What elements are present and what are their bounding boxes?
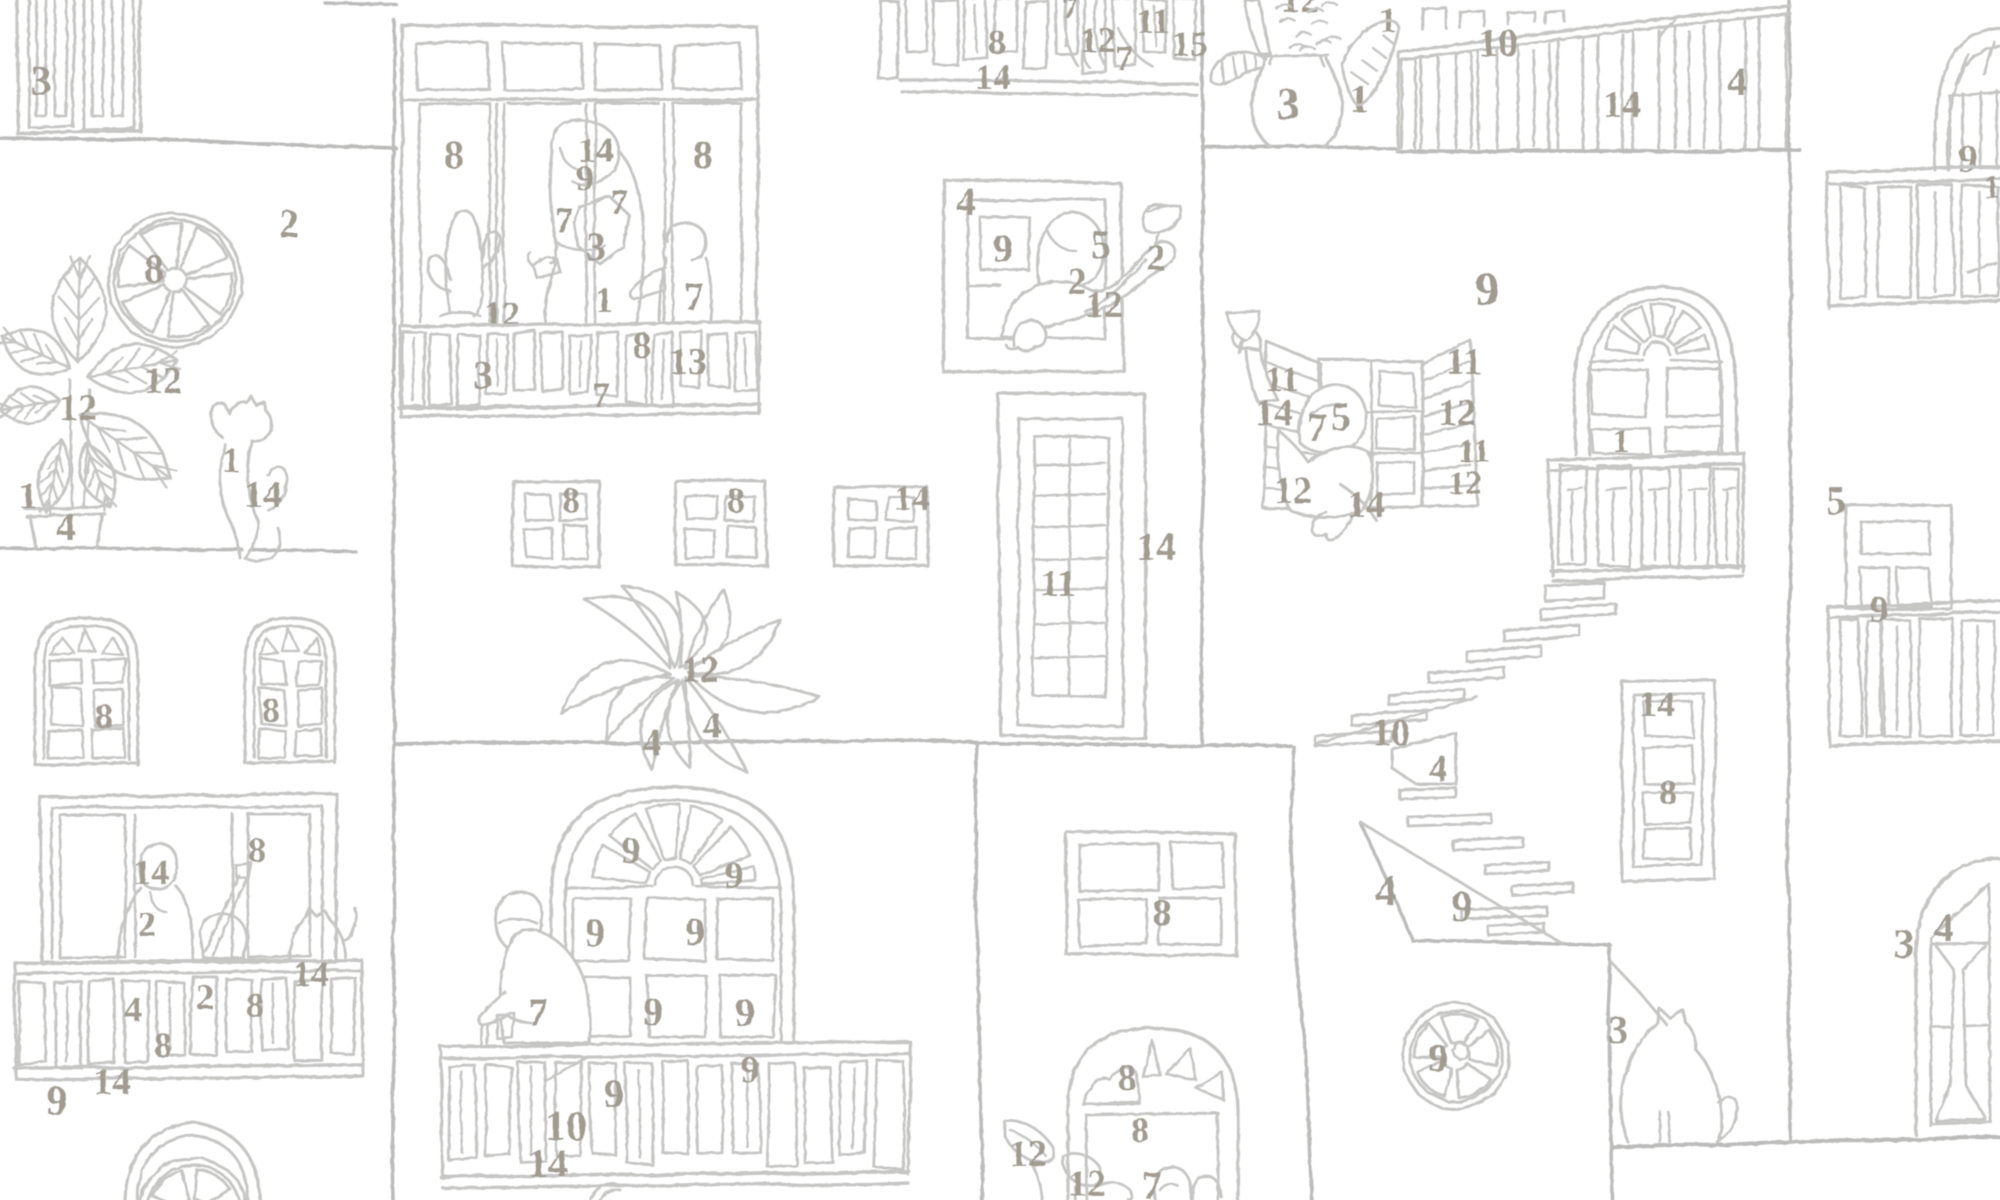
svg-text:2: 2 — [279, 201, 299, 246]
svg-text:14: 14 — [894, 478, 930, 518]
svg-text:9: 9 — [1451, 882, 1473, 931]
svg-text:5: 5 — [1331, 394, 1351, 439]
svg-text:4: 4 — [1375, 866, 1397, 915]
svg-text:12: 12 — [1068, 1163, 1106, 1200]
svg-text:3: 3 — [586, 224, 606, 269]
svg-text:14: 14 — [93, 1061, 131, 1103]
svg-text:14: 14 — [244, 474, 282, 516]
svg-text:9: 9 — [735, 990, 755, 1035]
svg-text:14: 14 — [1603, 84, 1641, 126]
svg-text:11: 11 — [1040, 563, 1076, 605]
svg-text:3: 3 — [473, 352, 493, 397]
svg-text:8: 8 — [1153, 892, 1172, 934]
svg-text:4: 4 — [1429, 748, 1448, 790]
svg-text:12: 12 — [1438, 392, 1476, 434]
svg-text:14: 14 — [1639, 684, 1675, 724]
svg-text:9: 9 — [47, 1079, 68, 1125]
svg-text:9: 9 — [725, 855, 744, 897]
svg-text:1: 1 — [1984, 169, 2000, 206]
svg-text:8: 8 — [988, 22, 1006, 62]
svg-text:7: 7 — [1307, 405, 1327, 450]
svg-text:10: 10 — [1478, 20, 1518, 65]
svg-text:9: 9 — [685, 909, 705, 954]
svg-text:8: 8 — [693, 132, 713, 177]
svg-text:7: 7 — [1062, 0, 1078, 25]
svg-text:14: 14 — [133, 852, 169, 892]
svg-text:4: 4 — [703, 705, 722, 747]
svg-text:12: 12 — [1448, 465, 1482, 502]
svg-text:8: 8 — [1659, 772, 1677, 812]
svg-text:13: 13 — [669, 341, 707, 383]
svg-text:8: 8 — [444, 132, 464, 177]
svg-text:3: 3 — [1277, 78, 1300, 129]
svg-text:7: 7 — [528, 990, 548, 1035]
svg-text:11: 11 — [1446, 341, 1482, 383]
svg-text:5: 5 — [1826, 478, 1846, 523]
svg-text:8: 8 — [246, 985, 264, 1025]
svg-text:9: 9 — [741, 1049, 760, 1091]
svg-text:14: 14 — [1255, 392, 1293, 434]
svg-text:11: 11 — [1136, 1, 1170, 41]
svg-text:9: 9 — [1475, 263, 1499, 316]
svg-text:8: 8 — [154, 1025, 172, 1065]
svg-text:12: 12 — [1080, 20, 1116, 60]
svg-text:8: 8 — [633, 325, 652, 367]
svg-text:14: 14 — [975, 57, 1011, 97]
svg-text:14: 14 — [293, 954, 329, 994]
svg-text:7: 7 — [610, 182, 628, 222]
svg-text:14: 14 — [1347, 484, 1385, 526]
svg-text:12: 12 — [1009, 1133, 1047, 1175]
svg-text:3: 3 — [31, 59, 52, 105]
svg-text:7: 7 — [1142, 1163, 1162, 1200]
svg-text:10: 10 — [1372, 712, 1410, 754]
svg-text:4: 4 — [643, 722, 662, 764]
svg-text:4: 4 — [1727, 59, 1747, 104]
svg-text:7: 7 — [555, 200, 573, 240]
svg-text:8: 8 — [248, 830, 266, 870]
svg-text:4: 4 — [956, 179, 976, 224]
svg-text:15: 15 — [1172, 24, 1208, 64]
svg-text:14: 14 — [1136, 524, 1176, 569]
svg-text:9: 9 — [1870, 589, 1889, 631]
svg-text:1: 1 — [1613, 423, 1630, 460]
svg-text:2: 2 — [138, 904, 156, 944]
svg-text:7: 7 — [684, 274, 704, 319]
svg-text:12: 12 — [1085, 284, 1123, 326]
svg-text:12: 12 — [484, 294, 520, 334]
svg-text:2: 2 — [1068, 261, 1087, 303]
svg-text:4: 4 — [56, 504, 76, 549]
svg-text:12: 12 — [1274, 470, 1312, 512]
svg-text:4: 4 — [124, 989, 142, 1029]
svg-text:8: 8 — [562, 480, 580, 520]
svg-text:12: 12 — [681, 649, 719, 691]
svg-text:8: 8 — [144, 246, 164, 291]
svg-text:9: 9 — [1958, 136, 1978, 181]
svg-text:2: 2 — [1147, 237, 1166, 279]
svg-text:1: 1 — [595, 280, 613, 320]
svg-text:2: 2 — [196, 977, 214, 1017]
svg-text:3: 3 — [1608, 1007, 1628, 1052]
svg-text:8: 8 — [95, 696, 113, 736]
svg-text:14: 14 — [528, 1141, 568, 1186]
svg-text:1: 1 — [222, 440, 240, 480]
svg-text:12: 12 — [59, 387, 97, 429]
svg-text:9: 9 — [576, 158, 594, 198]
svg-text:9: 9 — [585, 910, 605, 955]
svg-text:8: 8 — [727, 480, 745, 520]
svg-text:9: 9 — [643, 989, 663, 1034]
svg-text:9: 9 — [993, 226, 1013, 271]
svg-text:4: 4 — [1934, 905, 1954, 950]
svg-text:1: 1 — [19, 475, 38, 517]
svg-text:12: 12 — [144, 360, 182, 402]
svg-text:8: 8 — [1118, 1057, 1137, 1099]
svg-text:3: 3 — [1894, 922, 1915, 968]
svg-text:9: 9 — [1428, 1035, 1448, 1080]
svg-text:7: 7 — [1115, 38, 1133, 78]
svg-text:9: 9 — [604, 1071, 624, 1116]
svg-text:9: 9 — [622, 830, 641, 872]
svg-text:8: 8 — [1131, 1110, 1149, 1150]
svg-text:8: 8 — [262, 690, 280, 730]
svg-text:7: 7 — [592, 375, 610, 415]
svg-text:5: 5 — [1091, 222, 1111, 267]
